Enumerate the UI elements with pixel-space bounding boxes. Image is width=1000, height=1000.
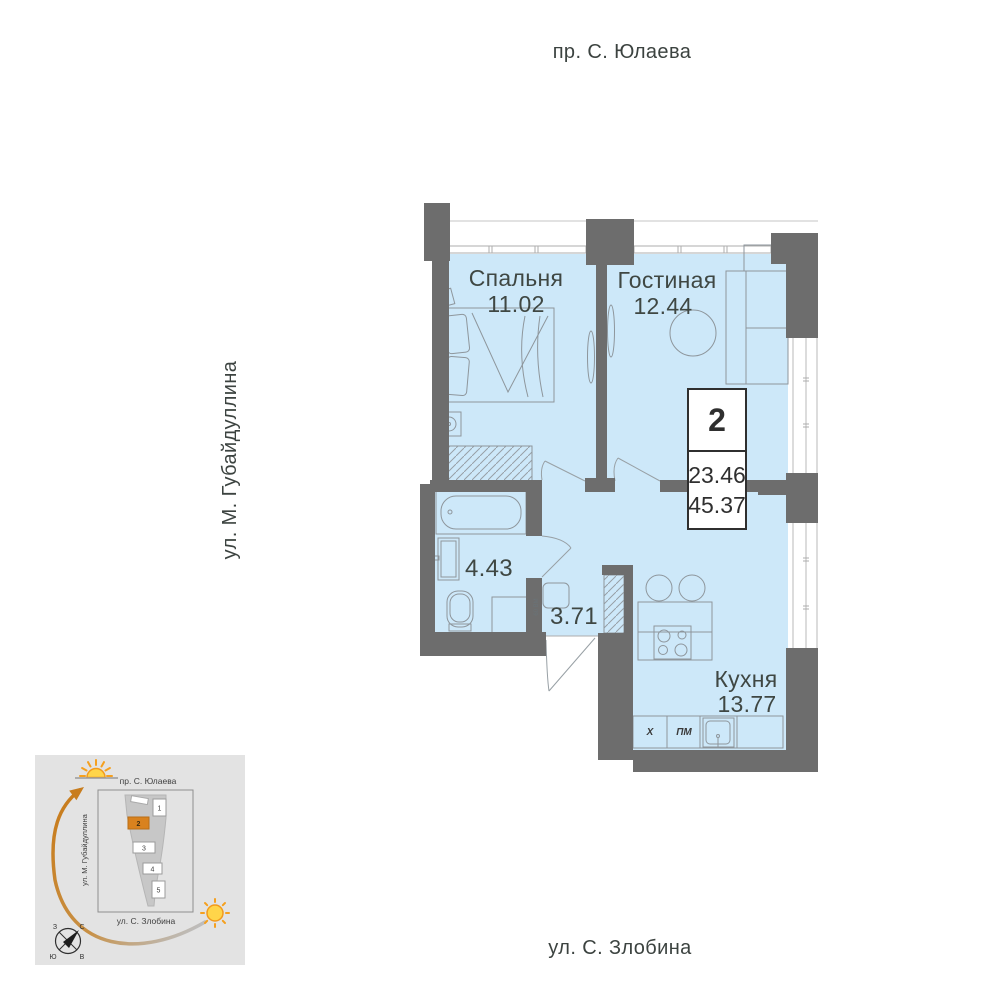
location-minimap: 1 2 3 4 5 пр. С. Юлаева ул. М. Губайдулл… (35, 755, 245, 965)
dishwasher-label: ПМ (669, 727, 699, 738)
bathroom-area: 4.43 (389, 556, 589, 582)
minimap-block-2-selected: 2 (128, 817, 149, 829)
entrance-door (546, 638, 595, 691)
block-4-number: 4 (151, 866, 155, 873)
compass-east: В (80, 954, 85, 961)
kitchen-label: Кухня (646, 666, 846, 692)
block-5-number: 5 (157, 887, 161, 894)
rooms-count: 2 (689, 390, 745, 452)
minimap-street-top: пр. С. Юлаева (120, 776, 177, 786)
living-area: 12.44 (563, 293, 763, 319)
minimap-street-bottom: ул. С. Злобина (117, 916, 176, 926)
block-2-number: 2 (137, 821, 141, 828)
living-label: Гостиная (567, 267, 767, 293)
fridge-label: Х (635, 727, 665, 738)
street-label-left: ул. М. Губайдуллина (218, 310, 242, 610)
street-label-top: пр. С. Юлаева (472, 40, 772, 64)
block-1-number: 1 (158, 806, 162, 813)
street-label-bottom: ул. С. Злобина (470, 936, 770, 960)
hall-area: 3.71 (474, 604, 674, 630)
kitchen-area: 13.77 (647, 691, 847, 717)
info-badge: 2 23.46 45.37 (687, 388, 747, 530)
minimap-block-3: 3 (133, 842, 155, 853)
minimap-block-4: 4 (143, 863, 162, 874)
minimap-block-5: 5 (152, 881, 165, 898)
compass-north: С (79, 924, 84, 931)
wardrobe (436, 446, 532, 482)
compass-south: Ю (49, 954, 56, 961)
block-3-number: 3 (142, 845, 146, 852)
minimap-block-1: 1 (153, 799, 166, 816)
total-area-value: 45.37 (688, 490, 746, 520)
washer-label: 60 ВМ (534, 592, 540, 622)
compass-west: З (53, 924, 57, 931)
living-area-value: 23.46 (688, 460, 746, 490)
minimap-street-left: ул. М. Губайдуллина (80, 813, 89, 885)
